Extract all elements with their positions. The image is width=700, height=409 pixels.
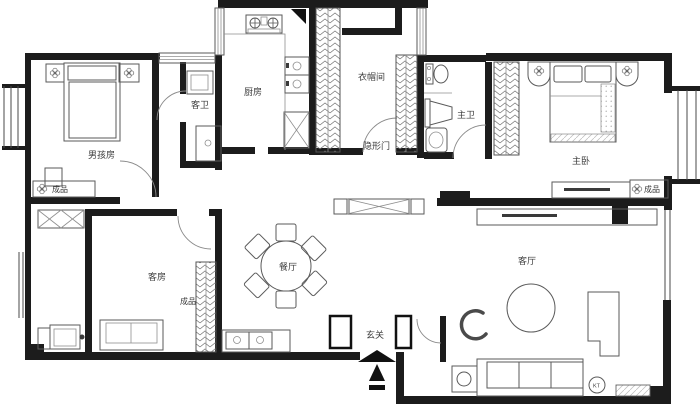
rug	[507, 284, 555, 332]
fridge	[284, 112, 309, 148]
kitchen: 厨房	[224, 15, 309, 150]
room-label-boy: 男孩房	[88, 149, 115, 160]
nightstand	[616, 62, 638, 86]
bay-window-left	[2, 84, 25, 150]
bay-window-master	[672, 86, 700, 184]
window-cloakroom	[417, 8, 426, 55]
dining-chair	[301, 235, 327, 261]
guest-room: 客房 成品	[100, 262, 216, 352]
bath-sink	[426, 128, 447, 152]
wardrobe	[396, 55, 417, 152]
dresser	[552, 182, 630, 198]
floor-plan: 成品 男孩房 客卫	[0, 0, 700, 409]
plant-icon	[50, 68, 60, 78]
storage-cabinet	[38, 210, 84, 228]
door-arc-guest-room	[178, 216, 211, 249]
room-label-kitchen: 厨房	[244, 86, 262, 97]
bed	[550, 62, 616, 142]
room-label-guest-bath: 客卫	[191, 99, 209, 110]
wardrobe	[316, 8, 340, 152]
door-arc-entry	[417, 319, 441, 343]
plant-icon	[124, 68, 134, 78]
dining-chair	[276, 224, 296, 241]
window-boy-kitchen	[159, 53, 215, 63]
room-label-living: 客厅	[518, 255, 536, 266]
vanity	[425, 99, 452, 127]
hall-console	[334, 199, 424, 214]
window-kitchen-left	[215, 8, 224, 55]
window-living-bottom	[616, 385, 650, 396]
finished-cabinet: 成品	[33, 181, 95, 197]
washing-machine	[50, 325, 85, 349]
wet-bar-sink	[222, 330, 290, 352]
wardrobe	[196, 262, 216, 352]
door-arc-boy-room	[120, 161, 156, 197]
desk	[45, 168, 62, 186]
window-guestroom-left	[19, 252, 23, 318]
north-arrow	[369, 364, 385, 390]
room-label-entrance: 玄关	[366, 329, 384, 340]
laundry-nook	[38, 210, 85, 349]
room-label-master-bath: 主卫	[457, 109, 475, 120]
entry-threshold-arrow	[358, 350, 396, 362]
flue-corner	[291, 9, 306, 24]
dining-chair	[244, 272, 270, 298]
door-arc-master-bath	[453, 125, 486, 158]
console-table	[347, 199, 411, 214]
nightstand	[528, 62, 550, 86]
entrance: 玄关	[358, 329, 396, 390]
bed	[64, 63, 120, 141]
armchair	[461, 311, 486, 339]
sideboard	[477, 209, 657, 225]
wardrobe	[494, 62, 519, 155]
dining-room: 餐厅	[222, 224, 327, 352]
finished-label: 成品	[52, 184, 68, 194]
side-table	[452, 366, 477, 392]
window-living-right	[665, 210, 670, 300]
room-label-guest-room: 客房	[148, 271, 166, 282]
dining-chair	[276, 291, 296, 308]
ac-outlet: KT	[589, 377, 605, 393]
finished-cabinet: 成品	[630, 180, 668, 198]
sofa-bed	[100, 320, 163, 350]
room-label-master-bedroom: 主卧	[572, 155, 590, 166]
floor-plan-svg: 成品 男孩房 客卫	[0, 0, 700, 409]
finished-label: 成品	[644, 184, 660, 194]
kitchen-sink	[285, 57, 309, 93]
dining-chair	[301, 270, 327, 296]
finished-label: 成品	[180, 296, 196, 306]
stove	[246, 15, 282, 33]
living-room: 客厅 KT	[452, 209, 657, 396]
sofa	[477, 359, 583, 396]
master-bedroom: 成品 主卧	[494, 62, 668, 198]
toilet	[426, 64, 448, 84]
doors	[120, 91, 486, 343]
ac-label: KT	[593, 384, 601, 390]
room-label-cloakroom: 衣帽间	[358, 71, 385, 82]
door-arc-guest-bath	[157, 91, 186, 120]
room-label-dining: 餐厅	[279, 261, 297, 272]
boy-room: 成品 男孩房	[33, 63, 139, 197]
hidden-door-label: 隐形门	[363, 140, 390, 151]
master-bath: 主卫	[424, 64, 475, 152]
tv-cabinet	[588, 292, 619, 356]
dining-chair	[244, 233, 270, 259]
